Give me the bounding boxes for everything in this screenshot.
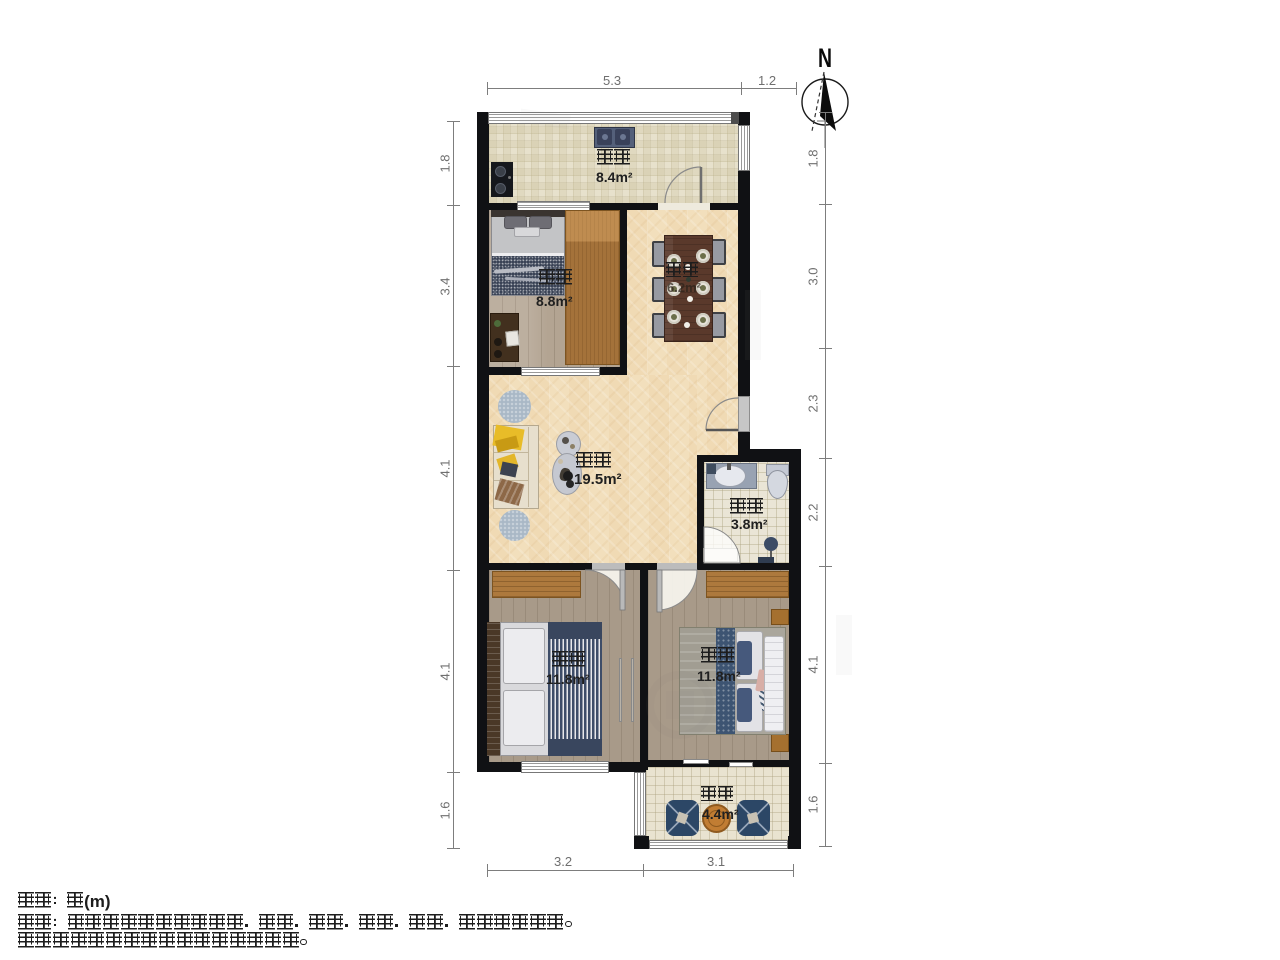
svg-text:N: N — [818, 43, 832, 73]
